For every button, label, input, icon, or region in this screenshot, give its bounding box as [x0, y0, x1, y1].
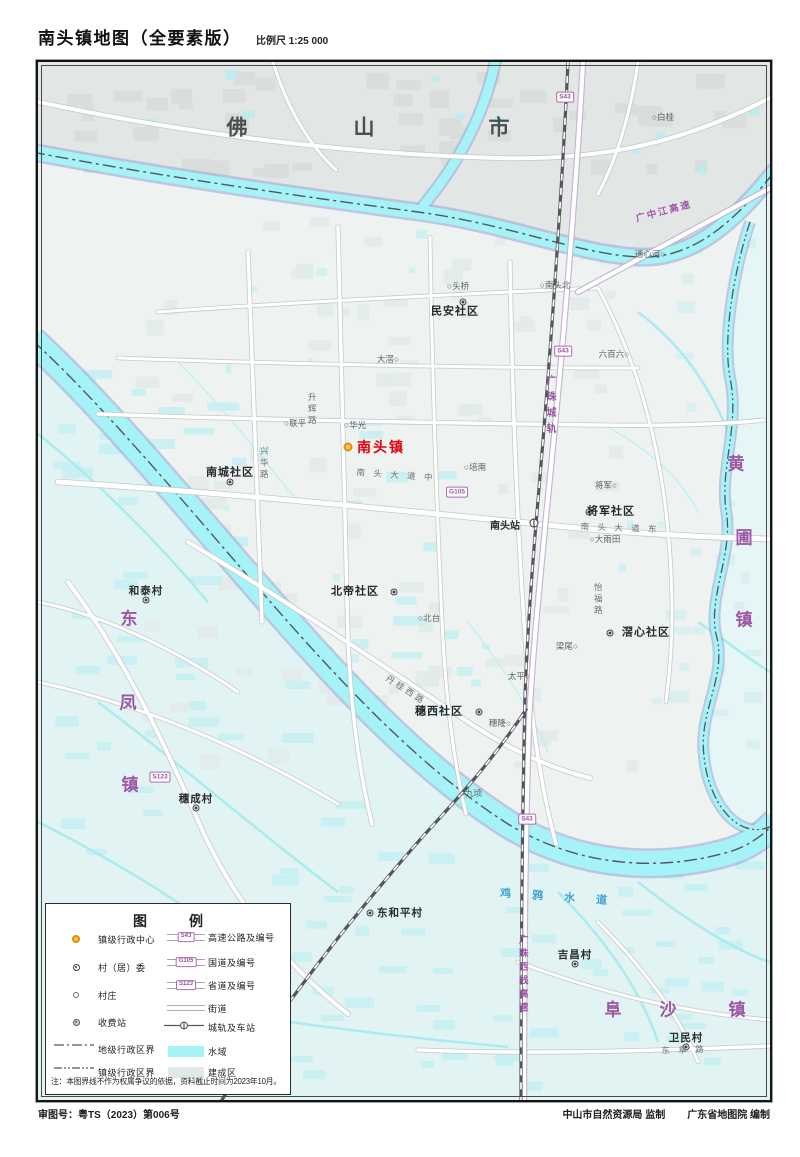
legend-label-expressway: 高速公路及编号 — [208, 931, 275, 944]
legend-label-water: 水域 — [208, 1045, 227, 1058]
legend-label-toll: 收费站 — [98, 1016, 127, 1029]
road-badge-s43-4: S43 — [518, 814, 536, 825]
map-canvas: 佛山市黄圃镇东凤镇阜沙镇南头镇民安社区南城社区将军社区北帝社区穗西社区滘心社区和… — [38, 62, 770, 1100]
legend-symbol-toll — [54, 1019, 98, 1026]
approval-number: 审图号：粤TS（2023）第006号 — [38, 1106, 180, 1121]
legend-row-left-3: 收费站 — [54, 1015, 127, 1029]
legend-label-provincial-road: 省道及编号 — [208, 979, 256, 992]
legend-row-left-1: 村（居）委 — [54, 960, 146, 974]
legend-symbol-hamlet — [54, 992, 98, 998]
legend-label-committee: 村（居）委 — [98, 961, 146, 974]
map-header: 南头镇地图（全要素版） 比例尺 1:25 000 — [38, 24, 328, 49]
legend-row-right-1: G105国道及编号 — [164, 955, 256, 969]
legend-symbol-expressway: S43 — [164, 934, 208, 941]
legend-row-right-2: S123省道及编号 — [164, 978, 256, 992]
road-badge-s123-3: S123 — [149, 772, 170, 783]
legend-label-street: 街道 — [208, 1002, 227, 1015]
page-title: 南头镇地图（全要素版） — [38, 29, 242, 48]
legend-label-hamlet: 村庄 — [98, 989, 117, 1002]
credits: 中山市自然资源局 监制广东省地图院 编制 — [540, 1106, 770, 1121]
road-badge-g105-2: G105 — [446, 487, 468, 498]
page: 南头镇地图（全要素版） 比例尺 1:25 000 佛山市黄圃镇东凤镇阜沙镇南头镇… — [0, 0, 800, 1157]
road-badge-s43-0: S43 — [556, 92, 574, 103]
legend-symbol-town-center — [54, 935, 98, 943]
legend-symbol-committee — [54, 964, 98, 971]
legend-row-left-2: 村庄 — [54, 988, 117, 1002]
legend-row-right-5: 水域 — [164, 1044, 227, 1058]
legend-row-right-4: 城轨及车站 — [164, 1020, 256, 1034]
legend-symbol-street — [164, 1005, 208, 1011]
legend-note: 注：本图界线不作为权属争议的依据，资料截止时间为2023年10月。 — [51, 1076, 287, 1087]
legend-row-left-4: 地级行政区界 — [54, 1042, 155, 1056]
legend-symbol-water — [164, 1046, 208, 1057]
legend-row-right-3: 街道 — [164, 1001, 227, 1015]
compiler-credit: 广东省地图院 编制 — [687, 1110, 770, 1121]
producer-credit: 中山市自然资源局 监制 — [562, 1110, 665, 1121]
road-badge-s43-1: S43 — [554, 346, 572, 357]
legend-label-national-road: 国道及编号 — [208, 956, 256, 969]
legend-row-left-0: 镇级行政中心 — [54, 932, 155, 946]
legend-title: 图 例 — [46, 911, 290, 931]
legend-box: 图 例 镇级行政中心村（居）委村庄收费站地级行政区界镇级行政区界S43高速公路及… — [45, 903, 291, 1095]
legend-symbol-national-road: G105 — [164, 959, 208, 966]
legend-label-rail: 城轨及车站 — [208, 1021, 256, 1034]
legend-label-city-boundary: 地级行政区界 — [98, 1043, 155, 1056]
scale-label: 比例尺 1:25 000 — [256, 36, 328, 47]
legend-row-right-0: S43高速公路及编号 — [164, 930, 275, 944]
legend-label-town-center: 镇级行政中心 — [98, 933, 155, 946]
legend-symbol-provincial-road: S123 — [164, 982, 208, 989]
